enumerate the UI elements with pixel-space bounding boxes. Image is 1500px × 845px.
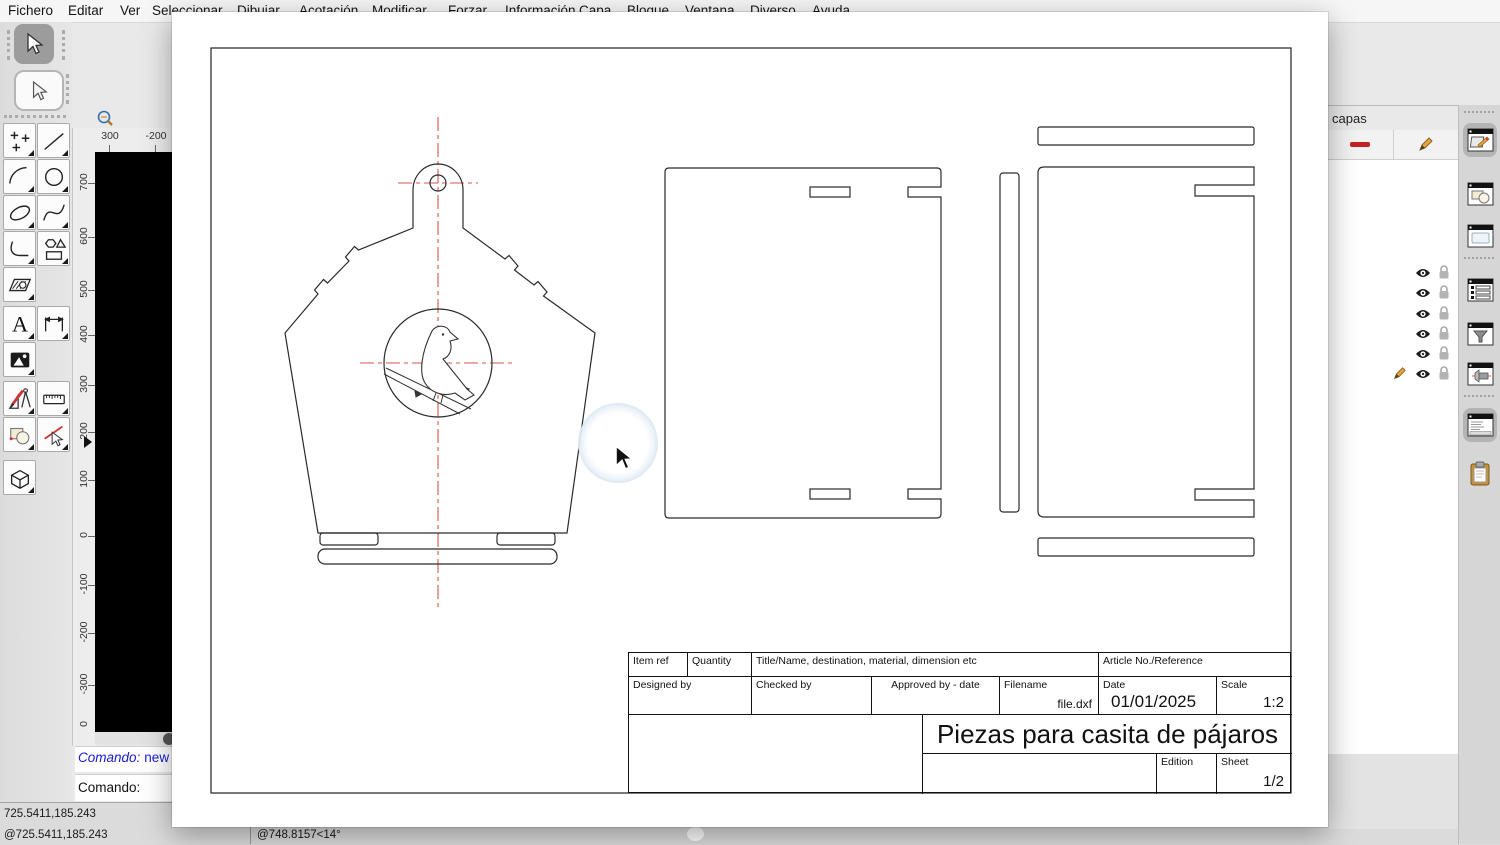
- foot-slot-left: [320, 533, 378, 545]
- edit-layer-button[interactable]: [1394, 130, 1459, 159]
- arc-tool-button[interactable]: [3, 159, 36, 194]
- vruler-label: 600: [78, 223, 90, 249]
- remove-layer-button[interactable]: [1328, 130, 1394, 159]
- finger-slot: [810, 489, 850, 499]
- vruler-label: -200: [78, 619, 90, 645]
- title-block-item-ref: Item ref: [629, 653, 688, 677]
- layer-row[interactable]: [1328, 344, 1458, 364]
- title-block-empty-cell: [629, 715, 923, 794]
- lock-icon[interactable]: [1438, 326, 1450, 341]
- dock-separator: [1464, 395, 1494, 399]
- canvas-horizontal-scrollbar[interactable]: [95, 732, 172, 745]
- vruler-label: 0: [78, 711, 90, 737]
- title-block-scale-cell: Scale 1:2: [1217, 677, 1292, 715]
- bottom-bar-piece[interactable]: [1038, 538, 1254, 556]
- draft-tool-button[interactable]: [3, 381, 36, 416]
- modify-tool-button[interactable]: [3, 417, 36, 452]
- finger-slot: [810, 187, 850, 197]
- top-bar-piece[interactable]: [1038, 127, 1254, 145]
- block-list-window-icon: [1467, 182, 1494, 206]
- layers-panel: capas: [1328, 105, 1458, 829]
- edit-layer-pencil-icon: [1417, 136, 1434, 153]
- clipboard-dock-button[interactable]: [1463, 457, 1497, 491]
- narrow-strip-piece[interactable]: [1000, 173, 1019, 512]
- dimension-tool-button[interactable]: [37, 306, 70, 341]
- eye-icon[interactable]: [1415, 348, 1431, 360]
- drawing-sheet-window[interactable]: Item ref Quantity Title/Name, destinatio…: [172, 12, 1328, 827]
- date-label: Date: [1103, 679, 1125, 691]
- lock-icon[interactable]: [1438, 306, 1450, 321]
- title-block-quantity: Quantity: [688, 653, 752, 677]
- qcad-application: { "menu": { "items": ["Fichero","Editar"…: [0, 0, 1500, 844]
- command-input[interactable]: Comando:: [75, 774, 172, 801]
- polygon-tool-button[interactable]: [37, 231, 70, 266]
- toolbar-drag-handle[interactable]: [4, 115, 66, 121]
- toolbar-drag-handle[interactable]: [62, 30, 68, 60]
- command-line-window-icon: [1467, 413, 1494, 437]
- block-list-dock-button[interactable]: [1463, 177, 1497, 211]
- layer-row-current[interactable]: [1328, 364, 1458, 384]
- lock-icon[interactable]: [1438, 265, 1450, 280]
- vruler-label: 500: [78, 276, 90, 302]
- command-history-value: new: [144, 750, 169, 765]
- selection-arrow-icon: [29, 80, 49, 102]
- title-block: Item ref Quantity Title/Name, destinatio…: [628, 652, 1291, 793]
- delete-tool-button[interactable]: [37, 417, 70, 452]
- status-divider: [250, 826, 251, 844]
- eye-icon[interactable]: [1415, 328, 1431, 340]
- pointer-highlight-halo: [578, 403, 658, 483]
- command-history: Comando:new: [75, 746, 172, 772]
- layer-row[interactable]: [1328, 304, 1458, 324]
- command-history-label: Comando:: [78, 750, 140, 765]
- right-dock: [1458, 105, 1500, 844]
- menu-ver[interactable]: Ver: [120, 3, 140, 18]
- title-block-sheet-cell: Sheet 1/2: [1217, 754, 1292, 794]
- eye-icon[interactable]: [1415, 287, 1431, 299]
- svg-text:A: A: [11, 311, 27, 336]
- layer-row[interactable]: [1328, 283, 1458, 303]
- layers-panel-footer: [1328, 754, 1458, 829]
- menu-fichero[interactable]: Fichero: [8, 3, 53, 18]
- drawing-title: Piezas para casita de pájaros: [923, 715, 1292, 754]
- dock-separator: [1464, 257, 1494, 261]
- spline-tool-button[interactable]: [37, 195, 70, 230]
- title-block-designed-by: Designed by: [629, 677, 752, 715]
- pencil-icon: [1392, 366, 1407, 381]
- scale-value: 1:2: [1263, 694, 1284, 711]
- vruler-label: 100: [78, 466, 90, 492]
- toolbar-drag-handle[interactable]: [66, 74, 72, 104]
- sheet-value: 1/2: [1263, 773, 1284, 790]
- title-block-approved-by: Approved by - date: [872, 677, 1000, 715]
- vruler-label: 300: [78, 371, 90, 397]
- selection-arrow-icon: [23, 32, 45, 56]
- toolbar-drag-handle[interactable]: [7, 30, 13, 60]
- filename-value: file.dxf: [1057, 697, 1092, 711]
- vruler-label: 700: [78, 169, 90, 195]
- title-block-title-name: Title/Name, destination, material, dimen…: [752, 653, 1099, 677]
- remove-layer-icon: [1350, 142, 1370, 147]
- vruler-label: 0: [78, 522, 90, 548]
- title-block-filename-cell: Filename file.dxf: [1000, 677, 1099, 715]
- layer-row[interactable]: [1328, 263, 1458, 283]
- lock-icon[interactable]: [1438, 346, 1450, 361]
- bird-cutout: [384, 326, 474, 414]
- model-canvas[interactable]: [95, 152, 172, 732]
- eye-icon[interactable]: [1415, 267, 1431, 279]
- layer-row[interactable]: [1328, 324, 1458, 344]
- wall-tool-dock-button[interactable]: [1463, 357, 1497, 391]
- selection-filter-dock-button[interactable]: [1463, 317, 1497, 351]
- eye-icon[interactable]: [1415, 308, 1431, 320]
- horizontal-ruler: 300 -200: [95, 128, 172, 152]
- layers-panel-title: capas: [1328, 106, 1458, 130]
- selection-filter-window-icon: [1467, 322, 1494, 346]
- property-list-window-icon: [1467, 278, 1494, 302]
- lock-icon[interactable]: [1438, 285, 1450, 300]
- library-browser-window-icon: [1467, 224, 1494, 248]
- title-block-article-no: Article No./Reference: [1099, 653, 1292, 677]
- title-block-checked-by: Checked by: [752, 677, 872, 715]
- status-coordinate-relative: @725.5411,185.243: [4, 829, 108, 841]
- property-list-dock-button[interactable]: [1463, 273, 1497, 307]
- hruler-label: 300: [95, 130, 125, 142]
- back-panel-piece[interactable]: [1038, 127, 1254, 556]
- command-line-dock-button[interactable]: [1463, 408, 1497, 442]
- ruler-position-marker: [84, 436, 92, 448]
- layer-list-dock-button[interactable]: [1463, 123, 1497, 157]
- zoom-app-icon[interactable]: [97, 110, 113, 126]
- title-block-edition-cell: Edition: [1157, 754, 1217, 794]
- vruler-label: -100: [78, 571, 90, 597]
- filename-label: Filename: [1004, 679, 1047, 691]
- title-block-date-cell: Date 01/01/2025: [1099, 677, 1217, 715]
- dock-drag-handle[interactable]: [1464, 111, 1494, 115]
- select-tool-button-active[interactable]: [14, 24, 54, 64]
- point-tool-button[interactable]: [3, 123, 36, 158]
- side-panel-piece[interactable]: [665, 168, 941, 518]
- text-tool-button[interactable]: A: [3, 306, 36, 341]
- vruler-label: 400: [78, 321, 90, 347]
- foot-slot-right: [497, 533, 555, 545]
- measure-tool-button[interactable]: [37, 381, 70, 416]
- sheet-label: Sheet: [1221, 756, 1248, 768]
- command-prompt-label: Comando:: [78, 780, 140, 795]
- ellipse-tool-button[interactable]: [3, 195, 36, 230]
- layers-panel-toolbar: [1328, 130, 1458, 160]
- title-block-empty-cell: [923, 754, 1157, 794]
- lock-icon[interactable]: [1438, 366, 1450, 381]
- menu-editar[interactable]: Editar: [68, 3, 103, 18]
- eye-icon[interactable]: [1415, 368, 1431, 380]
- wall-tool-window-icon: [1467, 362, 1494, 386]
- mouse-cursor-icon: [614, 445, 634, 473]
- vruler-label: -300: [78, 671, 90, 697]
- polyline-tool-button[interactable]: [3, 231, 36, 266]
- line-tool-button[interactable]: [37, 123, 70, 158]
- status-coordinate-absolute: 725.5411,185.243: [4, 808, 96, 820]
- hruler-label: -200: [139, 130, 173, 142]
- select-tool-button[interactable]: [14, 70, 64, 111]
- hatch-tool-button[interactable]: [3, 267, 36, 302]
- library-browser-dock-button[interactable]: [1463, 219, 1497, 253]
- status-coordinate-polar: @748.8157<14°: [257, 829, 341, 841]
- scale-label: Scale: [1221, 679, 1247, 691]
- image-tool-button[interactable]: [3, 342, 36, 377]
- status-ellipse: [687, 827, 704, 841]
- box3d-tool-button[interactable]: [3, 460, 36, 495]
- clipboard-icon: [1468, 461, 1492, 487]
- circle-tool-button[interactable]: [37, 159, 70, 194]
- left-toolbar: A: [0, 22, 72, 802]
- layer-list-window-icon: [1467, 128, 1494, 152]
- date-value: 01/01/2025: [1111, 692, 1196, 712]
